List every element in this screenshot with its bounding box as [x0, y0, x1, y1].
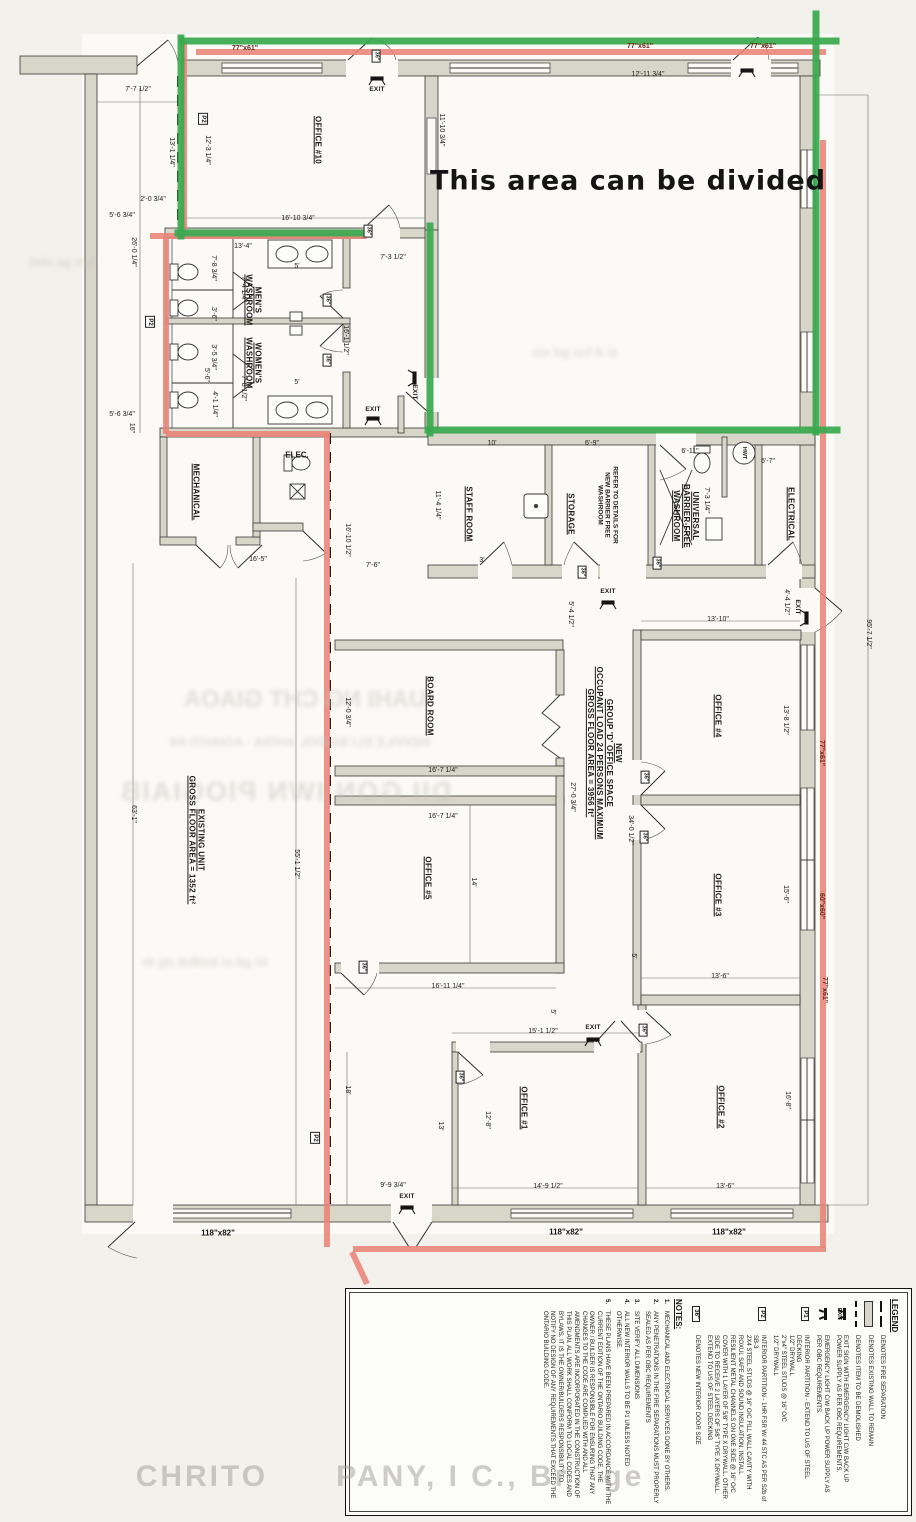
- plan-label: 7'-8 1/2": [239, 375, 247, 401]
- plan-label: 7'-4 1/4": [239, 276, 247, 302]
- plan-label: 14'-9 1/2": [533, 1183, 563, 1191]
- plan-label: 7'-8 3/4": [209, 255, 217, 281]
- plan-label: P2: [198, 113, 208, 125]
- plan-label: 36": [371, 50, 380, 63]
- plan-label: EXIT: [369, 86, 384, 94]
- plan-label: ELEC.: [285, 450, 309, 459]
- legend-item: P2 INTERIOR PARTITION - 1HR FSR W/ 44 ST…: [704, 1299, 766, 1505]
- plan-label: 7'-7 1/2": [125, 86, 151, 94]
- plan-label: 11'-10 3/4": [437, 114, 445, 147]
- plan-label: 77"x61": [820, 977, 828, 1003]
- bleed-through-smudge: ei d hsi gd eis: [532, 345, 618, 360]
- plan-label: STAFF ROOM: [464, 486, 473, 541]
- plan-label: 15'-6": [781, 885, 789, 903]
- plan-label: 36": [358, 961, 367, 974]
- legend-symbol-icon: P1: [801, 1299, 809, 1329]
- legend-symbol-icon: [855, 1299, 860, 1329]
- plan-label: 2'-0 3/4": [140, 196, 166, 204]
- plan-label: 77"x61": [627, 43, 653, 51]
- plan-label: 7'-3 1/4": [702, 487, 710, 513]
- plan-label: 13'-4": [234, 243, 252, 251]
- plan-label: 13'-6": [716, 1183, 734, 1191]
- legend-item-text: INTERIOR PARTITION - EXTEND TO U/S OF ST…: [770, 1335, 809, 1505]
- plan-label: 6'-7": [761, 458, 775, 466]
- plan-label: 5': [294, 379, 299, 387]
- plan-label: STORAGE: [566, 493, 575, 535]
- plan-label: 36": [638, 1024, 647, 1037]
- plan-label: 16": [127, 423, 135, 433]
- plan-label: 95'-7 1/2": [864, 619, 872, 649]
- plan-label: 13'-8 1/2": [781, 705, 789, 735]
- plan-label: 13'-10": [707, 616, 729, 624]
- legend-item-text: EMERGENCY LIGHT C/W BACK UP POWER SUPPLY…: [813, 1335, 829, 1505]
- plan-label: 12'-11 3/4": [632, 71, 665, 79]
- plan-label: 16'-1 1/2": [341, 325, 349, 355]
- bleed-through-smudge: UAHI NG CHT GIAOA: [184, 686, 427, 714]
- plan-label: 5': [548, 1009, 556, 1014]
- plan-label: 55'-1 1/2": [292, 849, 300, 879]
- plan-label: OFFICE #10: [313, 116, 322, 164]
- plan-label: 4'-1 1/4": [210, 391, 218, 417]
- legend-symbol-icon: [880, 1299, 885, 1329]
- bleed-through-smudge: DII GON IWN PIOGIAIB: [119, 777, 452, 808]
- plan-label: 7'-6": [366, 562, 380, 570]
- plan-label: EXIT: [585, 1024, 600, 1032]
- plan-label: P2: [145, 316, 155, 328]
- plan-label: BOARD ROOM: [425, 676, 434, 735]
- plan-label: 3'-6": [209, 307, 217, 321]
- legend-item: 36" DENOTES NEW INTERIOR DOOR SIZE: [692, 1299, 700, 1505]
- plan-label: 14': [469, 877, 477, 886]
- plan-label: 77"x61": [750, 43, 776, 51]
- notes-title: NOTES:: [674, 1299, 683, 1505]
- legend-item-text: INTERIOR PARTITION - 1HR FSR W/ 44 STC A…: [704, 1335, 766, 1505]
- plan-label: EXIT: [365, 406, 380, 414]
- plan-label: EXIT: [410, 384, 418, 399]
- plan-label: 27'-0 3/4": [568, 782, 576, 812]
- plan-label: 16'-11 1/4": [432, 983, 465, 991]
- plan-label: REFER TO DETAILS FOR NEW BARRIER FREE WA…: [596, 466, 619, 543]
- plan-label: HWT: [741, 447, 747, 460]
- plan-label: 36": [640, 771, 649, 784]
- bleed-through-smudge: ht gd ei bstBdl dg th: [142, 955, 268, 970]
- plan-label: 36": [652, 557, 661, 570]
- legend-item-text: DENOTES ITEM TO BE DEMOLISHED: [852, 1335, 860, 1441]
- plan-label: 5': [629, 953, 637, 958]
- plan-label: 13': [436, 1121, 444, 1130]
- plan-label: 5'-6": [202, 368, 210, 382]
- note-item: 2. ANY PENETRATIONS IN THE FIRE SEPARATI…: [642, 1299, 658, 1505]
- bleed-through-smudge: lyn ga ehd: [30, 255, 94, 270]
- plan-label: 36": [639, 831, 648, 844]
- plan-label: OFFICE #5: [423, 856, 432, 899]
- plan-label: 36": [363, 225, 372, 238]
- legend-title: LEGEND: [890, 1299, 899, 1505]
- plan-label: 12'-3 1/4": [203, 135, 211, 165]
- plan-label: 4'-4 1/2": [782, 589, 790, 615]
- legend-symbol-icon: EXIT: [836, 1299, 848, 1329]
- plan-label: 77"x61": [232, 45, 258, 53]
- plan-label: 36": [455, 1071, 464, 1084]
- legend-item-text: EXIT SIGN WITH EMERGENCY LIGHT C/W BACK …: [833, 1335, 849, 1505]
- plan-label: 10': [487, 440, 496, 448]
- plan-label: 13'-1 1/4": [167, 137, 175, 167]
- plan-label: UNIVERSAL BARRIER-FREE WASHROOM: [672, 484, 700, 548]
- plan-label: 11'-4 1/4": [433, 491, 441, 520]
- plan-label: NEW GROUP 'D' OFFICE SPACE OCCUPANT LOAD…: [585, 666, 623, 839]
- plan-label: 36": [322, 294, 331, 307]
- plan-label: EXISTING UNIT GROSS FLOOR AREA = 1352 ft…: [187, 776, 206, 905]
- plan-label: 118"x82": [549, 1227, 583, 1236]
- legend-item: EMERGENCY LIGHT C/W BACK UP POWER SUPPLY…: [813, 1299, 829, 1505]
- plan-label: 6'-11": [681, 448, 698, 456]
- plan-label: 9'-9 3/4": [380, 1182, 406, 1190]
- plan-label: 16'-8": [783, 1091, 791, 1109]
- plan-label: OFFICE #3: [713, 873, 722, 916]
- plan-label: 16'-10 1/2": [343, 523, 351, 556]
- legend-item: DENOTES ITEM TO BE DEMOLISHED: [852, 1299, 860, 1505]
- legend-item: EXIT EXIT SIGN WITH EMERGENCY LIGHT C/W …: [833, 1299, 849, 1505]
- legend-symbol-icon: [864, 1299, 873, 1329]
- plan-label: P2: [310, 1132, 320, 1144]
- floor-plan-page: UAHI NG CHT GIAOAINDIVILE ELI BAIDOL AHO…: [0, 0, 916, 1522]
- plan-label: 6'-9": [585, 440, 599, 448]
- legend-item: DENOTES FIRE SEPARATION: [877, 1299, 885, 1505]
- plan-label: 60"x60": [817, 893, 825, 919]
- plan-label: 12'-0 3/4": [343, 697, 351, 727]
- plan-label: 16'-10 3/4": [281, 215, 314, 223]
- note-item: 1. MECHANICAL AND ELECTRICAL SERVICES DO…: [661, 1299, 669, 1505]
- plan-label: 36": [322, 354, 331, 367]
- brokerage-watermark: CHRITO PANY, I C., Br ge: [136, 1460, 645, 1494]
- plan-label: 63'-1": [129, 805, 137, 823]
- plan-label: 118"x82": [201, 1228, 235, 1237]
- plan-label: 118"x82": [712, 1227, 746, 1236]
- plan-label: 13'-6": [711, 973, 729, 981]
- plan-label: 5'-6 3/4": [109, 411, 135, 419]
- plan-label: OFFICE #2: [716, 1085, 725, 1128]
- plan-label: 3'-5 3/4": [209, 344, 217, 370]
- plan-label: 16'-5": [249, 556, 267, 564]
- bleed-through-smudge: INDIVILE ELI BAIDOL AHOIA - AOIAHTI IHI: [169, 735, 430, 750]
- plan-label: EXIT: [399, 1193, 414, 1201]
- legend-item-text: DENOTES NEW INTERIOR DOOR SIZE: [692, 1335, 700, 1445]
- plan-label: OFFICE #4: [713, 694, 722, 737]
- plan-label: 12'-8": [483, 1111, 491, 1129]
- plan-label: EXIT: [600, 588, 615, 596]
- plan-label: 34'-0 1/2": [626, 815, 634, 845]
- plan-label: 16'-7 1/4": [428, 813, 458, 821]
- plan-label: MECHANICAL: [191, 464, 200, 521]
- plan-label: 5'-4 1/2": [566, 601, 574, 627]
- plan-label: OFFICE #1: [519, 1086, 528, 1129]
- legend-symbol-icon: P2: [758, 1299, 766, 1329]
- divided-area-annotation: This area can be divided: [430, 166, 826, 197]
- legend-item: DENOTES EXISTING WALL TO REMAIN: [864, 1299, 873, 1505]
- plan-label: EXIT: [793, 599, 801, 614]
- plan-label: 18': [343, 1085, 351, 1094]
- plan-label: 16'-7 1/4": [428, 767, 458, 775]
- plan-label: 15'-1 1/2": [528, 1028, 558, 1036]
- legend-symbol-icon: [824, 1299, 829, 1329]
- plan-label: 3': [479, 557, 484, 565]
- legend-symbol-icon: 36": [692, 1299, 700, 1329]
- plan-label: ELECTRICAL: [786, 487, 795, 541]
- plan-label: 36": [577, 566, 586, 579]
- plan-label: 7'-3 1/2": [380, 254, 406, 262]
- plan-label: 5': [294, 263, 299, 271]
- plan-label: 26'-0 1/4": [129, 237, 137, 267]
- plan-label: 5'-6 3/4": [109, 212, 135, 220]
- legend-item: P1 INTERIOR PARTITION - EXTEND TO U/S OF…: [770, 1299, 809, 1505]
- legend-item-text: DENOTES EXISTING WALL TO REMAIN: [865, 1335, 873, 1446]
- legend-item-text: DENOTES FIRE SEPARATION: [877, 1335, 885, 1419]
- plan-label: 77"x61": [817, 740, 825, 766]
